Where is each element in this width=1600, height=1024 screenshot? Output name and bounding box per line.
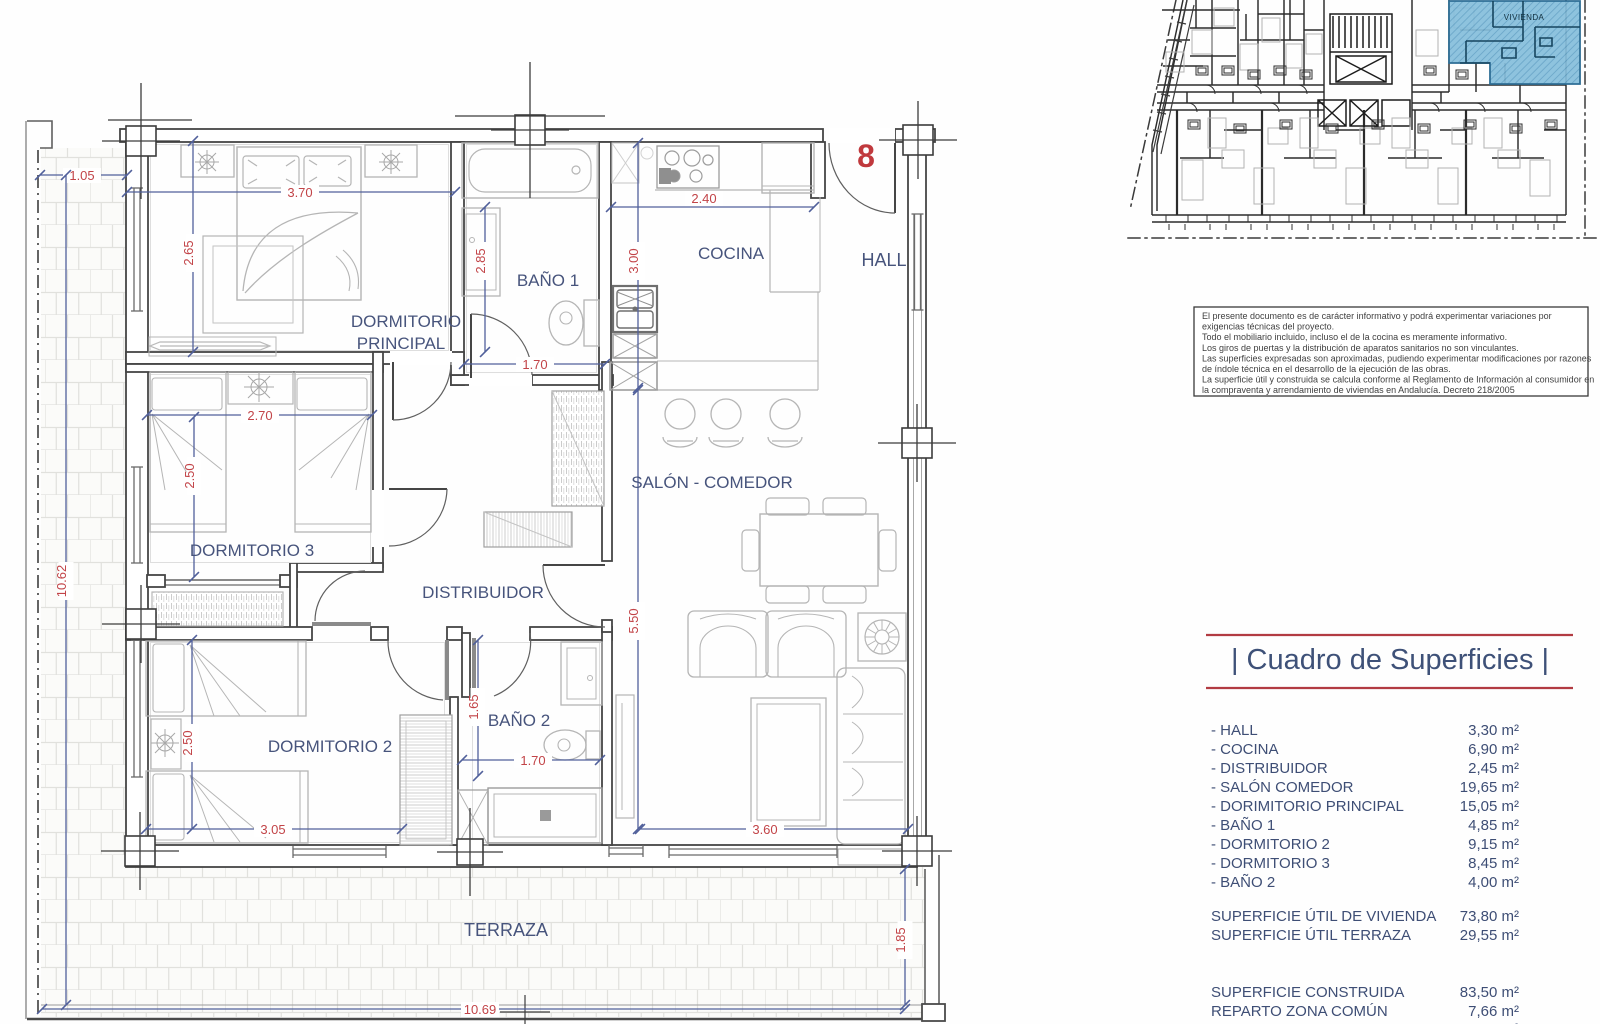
svg-text:Los giros de puertas y la dist: Los giros de puertas y la distribución d…	[1202, 343, 1519, 353]
svg-text:Todo el mobiliario incluido, i: Todo el mobiliario incluido, incluso el …	[1202, 332, 1507, 342]
svg-text:BAÑO 1: BAÑO 1	[517, 271, 579, 290]
svg-text:2.40: 2.40	[691, 191, 716, 206]
svg-text:exigencias técnicas del proyec: exigencias técnicas del proyecto.	[1202, 322, 1334, 332]
svg-text:- DISTRIBUIDOR: - DISTRIBUIDOR	[1211, 760, 1328, 777]
svg-text:83,50 m²: 83,50 m²	[1460, 984, 1519, 1001]
svg-text:9,15 m²: 9,15 m²	[1468, 836, 1519, 853]
svg-text:- BAÑO 2: - BAÑO 2	[1211, 874, 1275, 891]
svg-text:la compraventa y arrendamiento: la compraventa y arrendamiento de vivien…	[1202, 385, 1515, 395]
svg-text:1.05: 1.05	[69, 168, 94, 183]
svg-text:- SALÓN COMEDOR: - SALÓN COMEDOR	[1211, 779, 1354, 796]
svg-text:REPARTO ZONA COMÚN: REPARTO ZONA COMÚN	[1211, 1003, 1388, 1020]
svg-text:2.50: 2.50	[180, 730, 195, 755]
svg-text:SUPERFICIE ÚTIL DE VIVIENDA: SUPERFICIE ÚTIL DE VIVIENDA	[1211, 908, 1436, 925]
svg-text:10.62: 10.62	[54, 565, 69, 598]
svg-text:El presente documento es de ca: El presente documento es de carácter inf…	[1202, 311, 1552, 321]
svg-text:8,45 m²: 8,45 m²	[1468, 855, 1519, 872]
svg-text:6,90 m²: 6,90 m²	[1468, 741, 1519, 758]
svg-text:7,66 m²: 7,66 m²	[1468, 1003, 1519, 1020]
svg-text:15,05 m²: 15,05 m²	[1460, 798, 1519, 815]
svg-text:DORMITORIO: DORMITORIO	[351, 312, 461, 331]
svg-text:2.50: 2.50	[182, 463, 197, 488]
svg-text:TERRAZA: TERRAZA	[464, 920, 548, 940]
svg-text:SALÓN - COMEDOR: SALÓN - COMEDOR	[631, 473, 793, 492]
svg-text:COCINA: COCINA	[698, 244, 765, 263]
svg-text:- DORIMITORIO PRINCIPAL: - DORIMITORIO PRINCIPAL	[1211, 798, 1404, 815]
svg-text:1.65: 1.65	[466, 694, 481, 719]
svg-text:DISTRIBUIDOR: DISTRIBUIDOR	[422, 583, 544, 602]
svg-text:4,85 m²: 4,85 m²	[1468, 817, 1519, 834]
svg-text:SUPERFICIE ÚTIL TERRAZA: SUPERFICIE ÚTIL TERRAZA	[1211, 927, 1411, 944]
svg-text:3.00: 3.00	[626, 248, 641, 273]
svg-text:Las superficies expresadas son: Las superficies expresadas son aproximad…	[1202, 353, 1592, 363]
svg-text:PRINCIPAL: PRINCIPAL	[357, 334, 446, 353]
svg-text:2.70: 2.70	[247, 408, 272, 423]
svg-text:2.65: 2.65	[181, 240, 196, 265]
svg-text:73,80 m²: 73,80 m²	[1460, 908, 1519, 925]
svg-text:29,55 m²: 29,55 m²	[1460, 927, 1519, 944]
svg-text:BAÑO 2: BAÑO 2	[488, 711, 550, 730]
svg-text:1.85: 1.85	[893, 927, 908, 952]
svg-text:- DORMITORIO 3: - DORMITORIO 3	[1211, 855, 1330, 872]
svg-text:2.85: 2.85	[473, 248, 488, 273]
svg-text:10.69: 10.69	[464, 1002, 497, 1017]
svg-text:SUPERFICIE CONSTRUIDA: SUPERFICIE CONSTRUIDA	[1211, 984, 1404, 1001]
svg-text:8: 8	[857, 138, 875, 174]
svg-text:3.05: 3.05	[260, 822, 285, 837]
svg-text:3,30 m²: 3,30 m²	[1468, 722, 1519, 739]
svg-text:19,65 m²: 19,65 m²	[1460, 779, 1519, 796]
svg-text:DORMITORIO 3: DORMITORIO 3	[190, 541, 314, 560]
svg-text:- HALL: - HALL	[1211, 722, 1258, 739]
svg-text:La superficie útil y construid: La superficie útil y construida se calcu…	[1202, 375, 1594, 385]
svg-text:3.60: 3.60	[752, 822, 777, 837]
svg-text:- BAÑO 1: - BAÑO 1	[1211, 817, 1275, 834]
svg-text:DORMITORIO 2: DORMITORIO 2	[268, 737, 392, 756]
svg-text:4,00 m²: 4,00 m²	[1468, 874, 1519, 891]
svg-text:- DORMITORIO 2: - DORMITORIO 2	[1211, 836, 1330, 853]
svg-text:3.70: 3.70	[287, 185, 312, 200]
svg-text:HALL: HALL	[861, 250, 906, 270]
svg-text:de índole técnica en el desarr: de índole técnica en el desarrollo de la…	[1202, 364, 1451, 374]
svg-text:1.70: 1.70	[522, 357, 547, 372]
svg-text:| Cuadro de Superficies |: | Cuadro de Superficies |	[1231, 644, 1549, 676]
svg-text:2,45 m²: 2,45 m²	[1468, 760, 1519, 777]
svg-text:5.50: 5.50	[626, 608, 641, 633]
svg-text:- COCINA: - COCINA	[1211, 741, 1279, 758]
svg-text:1.70: 1.70	[520, 753, 545, 768]
svg-text:VIVIENDA: VIVIENDA	[1504, 13, 1545, 22]
